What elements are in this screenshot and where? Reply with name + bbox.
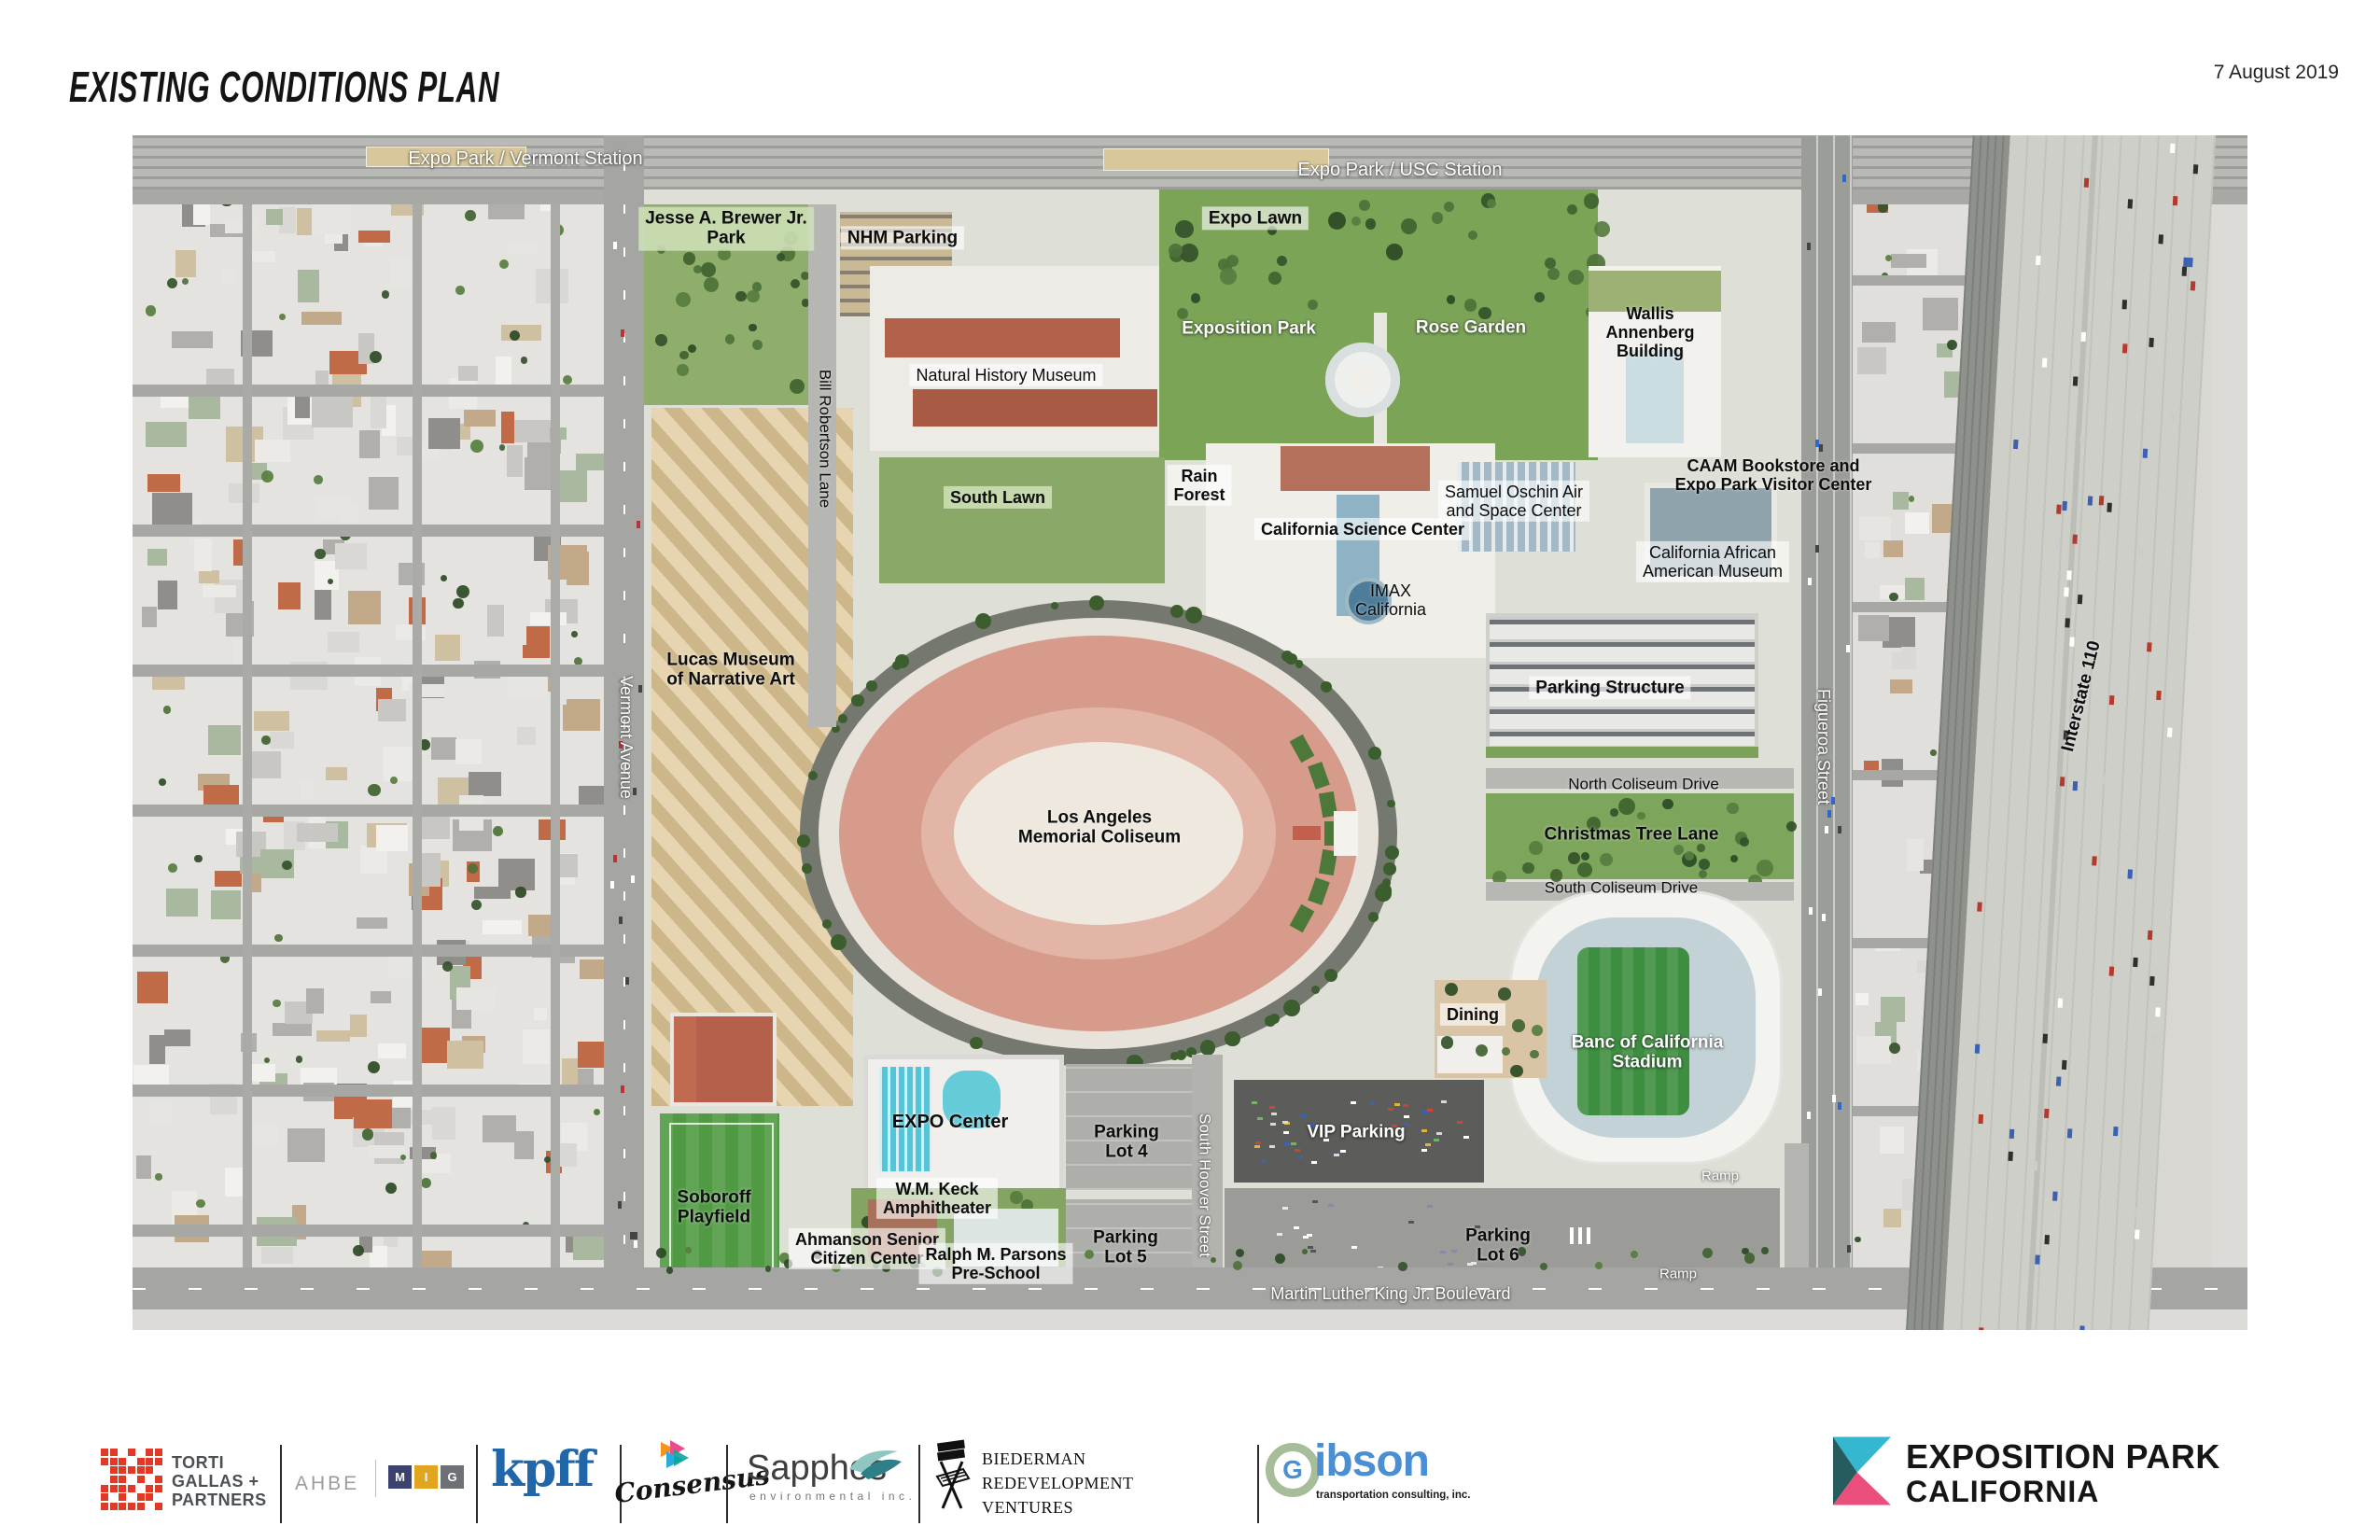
city-block <box>455 739 483 764</box>
biederman-line3: VENTURES <box>982 1495 1134 1519</box>
tree <box>784 231 798 245</box>
city-block <box>175 250 196 277</box>
vehicle <box>1421 1129 1427 1132</box>
tree <box>1365 218 1377 230</box>
tree <box>1277 256 1287 266</box>
torti-grid-cell <box>146 1503 153 1510</box>
gibson-logo-text: ibson <box>1314 1435 1429 1487</box>
city-block <box>1905 578 1925 600</box>
city-block <box>507 445 524 477</box>
city-block <box>194 539 212 571</box>
city-block <box>211 890 241 920</box>
tree <box>784 1259 792 1267</box>
tree <box>168 863 177 873</box>
tree <box>1930 749 1936 755</box>
stadium-ramp-road <box>1785 1143 1809 1267</box>
tree <box>456 585 469 598</box>
vehicle <box>2008 1152 2013 1161</box>
vehicle <box>1807 243 1811 250</box>
expo-center-pool-dive <box>943 1071 1001 1128</box>
city-block <box>580 959 605 979</box>
tree <box>368 784 380 796</box>
vehicle <box>1441 1100 1447 1103</box>
torti-grid-cell <box>155 1466 162 1474</box>
torti-grid-cell <box>101 1493 108 1501</box>
city-block <box>483 920 522 934</box>
vehicle <box>2190 281 2195 290</box>
tree <box>1185 607 1202 623</box>
vehicle <box>637 521 640 528</box>
city-block <box>358 231 390 244</box>
vehicle <box>633 788 637 795</box>
vehicle <box>2067 1128 2073 1138</box>
tree <box>1522 862 1533 874</box>
city-block <box>1907 839 1924 871</box>
tree <box>400 1155 406 1160</box>
vehicle <box>1334 1154 1339 1156</box>
city-block <box>435 635 460 661</box>
city-block <box>1856 1036 1891 1064</box>
tree <box>499 259 509 269</box>
exposition-park-logo-line1: EXPOSITION PARK <box>1906 1437 2220 1477</box>
vehicle <box>1427 1205 1433 1208</box>
tree <box>441 575 447 581</box>
tree <box>892 661 902 670</box>
vehicle <box>2102 776 2107 785</box>
tree <box>1487 199 1496 208</box>
tree <box>1699 870 1707 878</box>
torti-grid-cell <box>146 1476 153 1483</box>
sapphos-bird-icon <box>847 1441 905 1487</box>
tree <box>685 1247 692 1253</box>
vehicle <box>1440 1251 1446 1253</box>
tree <box>1225 1031 1239 1046</box>
vehicle <box>1808 578 1812 585</box>
tree <box>1211 1257 1216 1263</box>
biederman-line2: REDEVELOPMENT <box>982 1471 1134 1495</box>
vehicle <box>2052 1192 2058 1201</box>
vehicle <box>2057 505 2063 514</box>
tree <box>655 334 667 346</box>
torti-grid-cell <box>128 1476 135 1483</box>
science-center-roof <box>1281 446 1430 491</box>
tree <box>1267 226 1277 235</box>
city-block <box>316 1030 350 1042</box>
tree <box>155 1173 161 1180</box>
city-block <box>137 972 168 1004</box>
vehicle <box>1282 1207 1288 1210</box>
city-block <box>378 1043 406 1059</box>
city-block <box>287 1128 325 1163</box>
vehicle <box>2158 235 2163 245</box>
tree <box>382 290 389 298</box>
torti-grid-cell <box>128 1503 135 1510</box>
vehicle <box>2149 976 2155 986</box>
vehicle <box>2028 899 2034 908</box>
oschin-pavilion <box>1458 462 1575 552</box>
tree <box>370 351 382 363</box>
city-block <box>208 725 240 755</box>
city-block <box>517 727 536 745</box>
city-block <box>488 203 525 219</box>
torti-grid-cell <box>155 1493 162 1501</box>
parking-structure-green-edge <box>1486 747 1758 758</box>
tree <box>455 286 465 295</box>
vehicle <box>2009 1128 2014 1138</box>
page-title: EXISTING CONDITIONS PLAN <box>69 62 499 112</box>
divider <box>726 1445 728 1523</box>
city-block <box>136 1155 151 1179</box>
wallis-courtyard-pool <box>1626 350 1684 443</box>
vehicle <box>1822 914 1826 921</box>
vehicle <box>2066 570 2072 580</box>
city-block <box>354 1099 392 1127</box>
tree <box>1673 845 1685 856</box>
vehicle <box>2073 781 2079 791</box>
tree <box>159 778 166 786</box>
city-block <box>1923 298 1958 330</box>
tree <box>838 714 847 723</box>
vermont-avenue-road <box>604 135 644 1330</box>
torti-grid-cell <box>110 1503 118 1510</box>
vehicle <box>2072 376 2078 385</box>
torti-line2: GALLAS + <box>172 1473 267 1491</box>
vehicle <box>2189 258 2194 267</box>
tree <box>282 861 291 870</box>
vehicle <box>2122 300 2128 309</box>
vehicle <box>2036 255 2041 264</box>
vehicle <box>1269 1145 1275 1148</box>
city-block <box>147 474 180 492</box>
city-block <box>254 711 289 731</box>
city-block <box>215 871 242 887</box>
divider <box>476 1445 478 1523</box>
vehicle <box>1294 1226 1299 1229</box>
tree <box>985 1250 991 1256</box>
city-block <box>297 823 337 842</box>
nhm-roof-south <box>913 389 1157 427</box>
tree <box>735 291 747 302</box>
torti-grid-cell <box>110 1476 118 1483</box>
vehicle <box>2079 1325 2085 1330</box>
city-block <box>447 1041 483 1069</box>
tree <box>1401 218 1417 234</box>
tree <box>1010 1191 1022 1203</box>
vehicle <box>1838 1102 1841 1110</box>
city-block <box>199 570 219 583</box>
tree <box>1445 983 1458 996</box>
city-block <box>469 772 501 796</box>
city-block <box>456 987 495 1011</box>
vehicle <box>2107 503 2112 512</box>
tree <box>261 470 273 483</box>
city-block <box>1892 652 1914 669</box>
vehicle <box>2122 343 2128 353</box>
city-block <box>458 366 478 381</box>
torti-grid-cell <box>137 1485 145 1492</box>
nhm-roof-north <box>885 318 1120 357</box>
city-street <box>551 187 560 1267</box>
vehicle <box>1422 1111 1428 1113</box>
divider <box>1257 1445 1259 1523</box>
city-block <box>1883 540 1902 557</box>
tree <box>725 334 735 344</box>
tree <box>1594 221 1610 237</box>
torti-grid-cell <box>101 1503 108 1510</box>
city-block <box>511 420 551 442</box>
torti-grid-cell <box>101 1485 108 1492</box>
kpff-logo: kpff <box>491 1441 593 1498</box>
vehicle <box>2108 966 2114 975</box>
vehicle <box>2151 1034 2157 1043</box>
tree <box>296 1056 302 1062</box>
vehicle <box>2036 1254 2041 1264</box>
tree <box>1176 1050 1186 1060</box>
vehicle <box>1340 1150 1346 1153</box>
rail-platform-usc <box>1103 148 1329 171</box>
caam-building <box>1645 483 1777 581</box>
city-block <box>172 331 213 348</box>
city-block <box>348 591 381 624</box>
vehicle <box>2128 870 2134 879</box>
vehicle <box>2170 413 2176 422</box>
vehicle <box>1311 1161 1317 1164</box>
vehicle <box>2071 723 2077 733</box>
tree <box>1308 300 1318 310</box>
vehicle <box>1425 1143 1431 1146</box>
tree <box>1383 862 1396 875</box>
city-block <box>315 587 332 620</box>
tree <box>1697 844 1705 852</box>
city-block <box>1855 993 1869 1005</box>
vehicle <box>2060 777 2065 787</box>
tree <box>1269 1014 1280 1024</box>
vehicle <box>2065 619 2070 628</box>
vehicle <box>1838 826 1841 833</box>
vehicle <box>1408 1221 1414 1224</box>
tree <box>471 900 482 910</box>
city-block <box>559 470 587 502</box>
tree <box>1375 886 1391 902</box>
torti-grid-cell <box>146 1493 153 1501</box>
tree <box>314 475 323 484</box>
vehicle <box>1351 1246 1357 1249</box>
tree <box>1268 272 1281 285</box>
city-block <box>1905 512 1929 534</box>
tree <box>791 279 800 288</box>
tree <box>1757 860 1773 876</box>
tree <box>442 961 453 972</box>
vehicle <box>2128 877 2134 887</box>
tree <box>1889 593 1897 601</box>
city-block <box>298 270 318 302</box>
city-street <box>133 385 604 397</box>
tree <box>747 290 759 302</box>
vehicle <box>1388 1108 1393 1111</box>
tree <box>718 248 731 261</box>
city-block <box>501 325 541 341</box>
vehicle <box>2063 730 2068 739</box>
tree <box>676 292 691 307</box>
vehicle <box>1291 1142 1296 1145</box>
vip-parking-surface <box>1234 1080 1484 1183</box>
tree <box>1699 859 1710 870</box>
city-block <box>203 785 240 805</box>
city-block <box>252 1064 275 1082</box>
tree <box>1947 340 1958 351</box>
torti-grid-cell <box>110 1458 118 1465</box>
vehicle <box>619 917 623 924</box>
vehicle <box>1403 1104 1408 1107</box>
vehicle <box>1832 1095 1836 1102</box>
city-block <box>326 767 347 781</box>
vehicle <box>621 1085 624 1093</box>
torti-grid-cell <box>128 1485 135 1492</box>
tree <box>1540 1263 1547 1270</box>
vehicle <box>1310 1250 1316 1253</box>
tree <box>465 210 476 221</box>
torti-grid-cell <box>146 1466 153 1474</box>
exposition-park-logo-icon <box>1831 1435 1893 1506</box>
divider <box>918 1445 920 1523</box>
city-block <box>301 312 341 324</box>
torti-grid-cell <box>155 1476 162 1483</box>
tree <box>264 1057 270 1063</box>
vehicle <box>2072 535 2078 544</box>
tree <box>315 549 325 559</box>
tree <box>1727 803 1738 814</box>
vehicle <box>1831 797 1835 805</box>
torti-grid-cell <box>137 1466 145 1474</box>
tree <box>1568 852 1580 864</box>
city-block <box>255 440 290 462</box>
city-block <box>1858 615 1889 641</box>
tree <box>1220 268 1237 285</box>
torti-grid-cell <box>128 1449 135 1456</box>
tree <box>1577 862 1592 877</box>
vehicle <box>1356 1133 1362 1136</box>
vehicle <box>1295 1149 1300 1152</box>
vehicle <box>1269 1106 1275 1109</box>
tree <box>368 1061 380 1073</box>
city-block <box>371 991 391 1003</box>
red-roof-complex <box>670 1013 777 1106</box>
vehicle <box>2170 144 2176 153</box>
vehicle <box>1312 1200 1318 1203</box>
tree <box>163 706 172 714</box>
city-block <box>164 1029 190 1046</box>
tree <box>279 314 286 320</box>
tree <box>1618 798 1635 815</box>
city-block <box>1890 679 1912 693</box>
city-block <box>359 430 380 458</box>
tree <box>421 1178 431 1188</box>
south-lawn-green <box>879 457 1165 583</box>
city-block <box>514 1131 534 1159</box>
vehicle <box>625 977 629 985</box>
vehicle <box>2167 728 2173 737</box>
vehicle <box>1815 545 1819 553</box>
vehicle <box>2133 957 2138 966</box>
tree <box>521 357 528 364</box>
tree <box>1468 231 1477 240</box>
vehicle <box>2127 200 2133 209</box>
tree <box>679 351 688 359</box>
vehicle <box>2113 1127 2119 1136</box>
coliseum-track-segment <box>1293 826 1321 840</box>
city-street <box>133 805 604 817</box>
tree <box>1447 295 1456 304</box>
vehicle <box>1421 1149 1427 1152</box>
vehicle <box>1463 1136 1469 1139</box>
city-block <box>523 1029 550 1064</box>
tree <box>688 344 696 353</box>
vehicle <box>1467 1228 1473 1231</box>
vehicle <box>1271 1113 1277 1115</box>
tree <box>493 826 503 836</box>
tree <box>1359 200 1370 211</box>
parking-structure-deck <box>1486 613 1758 749</box>
city-block <box>152 676 185 691</box>
torti-grid-cell <box>110 1493 118 1501</box>
folding-chair-icon <box>931 1439 973 1519</box>
ahbe-mig-divider <box>375 1460 376 1497</box>
vehicle <box>2062 501 2067 511</box>
torti-grid-cell <box>146 1458 153 1465</box>
city-block <box>297 208 313 235</box>
tree <box>515 887 525 897</box>
vehicle <box>2056 539 2062 549</box>
tree <box>1685 851 1694 861</box>
vehicle <box>2138 546 2144 555</box>
tree <box>1545 258 1556 269</box>
city-block <box>357 917 386 929</box>
vehicle <box>2041 357 2047 367</box>
tree <box>970 1037 982 1049</box>
tree <box>656 1248 666 1258</box>
city-block <box>301 779 315 800</box>
bill-robertson-lane-road <box>808 204 836 727</box>
city-block <box>1865 542 1879 558</box>
vehicle <box>1846 645 1850 652</box>
vehicle <box>1277 1233 1282 1236</box>
torti-grid-cell <box>128 1493 135 1501</box>
tree <box>1518 1247 1526 1255</box>
gibson-logo-subtext: transportation consulting, inc. <box>1316 1490 1470 1501</box>
tree <box>194 855 203 863</box>
tree <box>1631 1251 1638 1258</box>
tree <box>1889 1043 1900 1054</box>
vehicle <box>1257 1117 1263 1120</box>
vehicle <box>618 1201 622 1209</box>
tree <box>1744 1253 1756 1264</box>
city-block <box>376 825 408 850</box>
vehicle <box>1436 1132 1442 1135</box>
vehicle <box>1252 1101 1257 1104</box>
vehicle <box>2147 643 2152 652</box>
city-block <box>266 209 283 225</box>
city-block <box>371 396 386 428</box>
torti-grid-cell <box>155 1503 162 1510</box>
tree <box>146 305 156 315</box>
vehicle <box>1394 1103 1400 1106</box>
tree <box>701 262 716 277</box>
torti-line1: TORTI <box>172 1454 267 1473</box>
vehicle <box>2114 686 2120 695</box>
torti-gallas-logo-text: TORTI GALLAS + PARTNERS <box>172 1454 267 1509</box>
tree <box>683 252 696 265</box>
tree <box>1368 912 1379 922</box>
